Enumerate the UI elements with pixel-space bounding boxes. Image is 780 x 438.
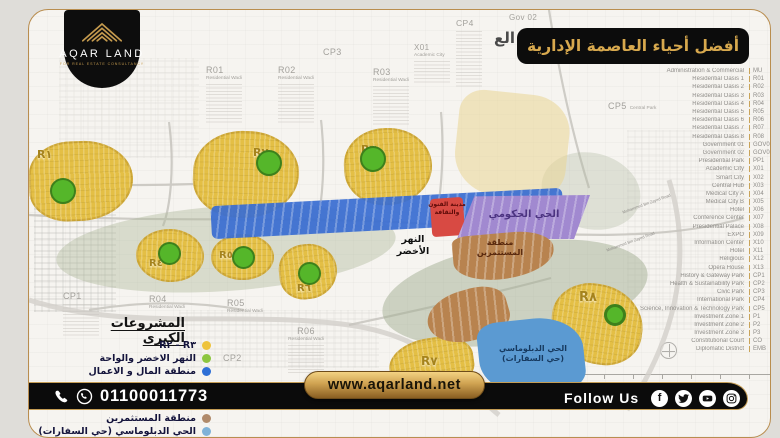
- legend-color-dot: [202, 341, 211, 350]
- map-label-code: R03: [373, 67, 409, 77]
- legend-row-code: X08: [749, 224, 771, 230]
- government-zone-label: الحي الحكومي: [484, 209, 564, 222]
- legend-row: Medical City B X05: [616, 198, 771, 206]
- map-label-code: CP2: [223, 353, 242, 363]
- legend-row: Residential Oasis 8 R08: [616, 133, 771, 141]
- legend-row-label: Residential Oasis 4: [616, 101, 749, 107]
- map-label-sub: Academic City: [414, 53, 450, 58]
- green-marker: [298, 262, 321, 285]
- projects-legend-bottom: منطقة المستثمرين الحي الدبلوماسي (حي الس…: [41, 412, 211, 438]
- legend-item: منطقة المال و الاعمال: [41, 365, 211, 378]
- diplomatic-zone-label-line1: الحي الدبلوماسي: [495, 344, 571, 354]
- legend-row: International Park CP4: [616, 296, 771, 304]
- legend-row: Residential Oasis 1 R01: [616, 75, 771, 83]
- legend-row-code: CP5: [749, 306, 771, 312]
- district-label: R٥: [219, 251, 233, 261]
- legend-row-code: R06: [749, 117, 771, 123]
- poster-page: { "colors": { "gold": "#c49a4e", "black"…: [0, 0, 780, 438]
- green-marker: [360, 146, 386, 172]
- district-legend: Administration & Commercial MU Residenti…: [616, 67, 771, 354]
- phone-icon: [54, 389, 69, 404]
- legend-row-label: Government 02: [616, 150, 749, 156]
- legend-row: Religious X12: [616, 255, 771, 263]
- legend-row-code: CP2: [749, 281, 771, 287]
- legend-row-label: Presidential Palace: [616, 224, 749, 230]
- map-label-x01: X01 Academic City: [414, 43, 450, 83]
- legend-row: Government 02 GOV02: [616, 149, 771, 157]
- legend-row-code: EMB: [749, 346, 771, 352]
- map-label-cp2: CP2: [223, 353, 242, 363]
- map-label-code: CP3: [323, 47, 342, 57]
- green-marker: [232, 246, 255, 269]
- legend-row-code: R08: [749, 134, 771, 140]
- map-label-cp4: CP4: [456, 18, 482, 89]
- map-label-code: X01: [414, 43, 450, 52]
- legend-row: Diplomatic District EMB: [616, 345, 771, 353]
- legend-row: Medical City A X04: [616, 190, 771, 198]
- legend-row-label: Presidential Park: [616, 158, 749, 164]
- legend-row-code: X06: [749, 207, 771, 213]
- legend-item-label: الحي الدبلوماسي (حي السفارات): [38, 426, 196, 437]
- legend-row-label: Constitutional Court: [616, 338, 749, 344]
- brand-name: AQAR LAND: [59, 48, 144, 60]
- legend-row-label: Medical City A: [616, 191, 749, 197]
- legend-row-label: Civic Park: [616, 289, 749, 295]
- district-label: R٧: [421, 355, 438, 367]
- district-label: R١: [37, 149, 52, 160]
- legend-row-label: Investment Zone 3: [616, 330, 749, 336]
- legend-row-code: GOV02: [749, 150, 771, 156]
- legend-row-label: Administration & Commercial: [616, 68, 749, 74]
- instagram-camera: [726, 393, 737, 404]
- legend-row-code: CP4: [749, 297, 771, 303]
- legend-row-code: PP1: [749, 158, 771, 164]
- headline-banner: أفضل أحياء العاصمة الإدارية: [517, 28, 749, 64]
- facebook-icon[interactable]: f: [651, 390, 668, 407]
- legend-row-code: X01: [749, 166, 771, 172]
- legend-row: Residential Oasis 5 R05: [616, 108, 771, 116]
- diplomatic-zone-label-line2: (حي السفارات): [495, 354, 571, 364]
- legend-row-code: CP1: [749, 273, 771, 279]
- legend-row: Residential Oasis 2 R02: [616, 83, 771, 91]
- brand-logo: AQAR LAND FOR REAL ESTATE CONSULTANCY: [64, 10, 140, 88]
- legend-row: Investment Zone 2 P2: [616, 321, 771, 329]
- label-details-lines: [206, 84, 242, 124]
- legend-row-label: History & Gateway Park: [616, 273, 749, 279]
- website-url[interactable]: www.aqarland.net: [328, 377, 461, 393]
- legend-row-label: Diplomatic District: [616, 346, 749, 352]
- whatsapp-icon: [76, 388, 93, 405]
- legend-row-code: R03: [749, 93, 771, 99]
- green-marker: [256, 150, 282, 176]
- twitter-icon[interactable]: [675, 390, 692, 407]
- legend-row: Government 01 GOV01: [616, 141, 771, 149]
- legend-row-label: Health & Sustainability Park: [616, 281, 749, 287]
- map-label-r02: R02 Residential Wadi: [278, 65, 314, 124]
- map-label-cp3: CP3: [323, 47, 342, 57]
- legend-row-code: P2: [749, 322, 771, 328]
- facebook-glyph: f: [658, 393, 662, 404]
- legend-row-code: MU: [749, 68, 771, 74]
- legend-row-label: Investment Zone 1: [616, 314, 749, 320]
- legend-row-code: P1: [749, 314, 771, 320]
- legend-row-label: Medical City B: [616, 199, 749, 205]
- label-details-lines: [373, 86, 409, 126]
- legend-row: Health & Sustainability Park CP2: [616, 280, 771, 288]
- legend-row: History & Gateway Park CP1: [616, 272, 771, 280]
- legend-row-code: CP3: [749, 289, 771, 295]
- legend-row-code: X03: [749, 183, 771, 189]
- legend-item: النهر الاخضر والواحة: [41, 352, 211, 365]
- map-title-fragment: الع: [494, 29, 515, 47]
- investors-zone-label: منطقة المستثمرين: [474, 238, 526, 258]
- legend-row-code: GOV01: [749, 142, 771, 148]
- map-label-sub: Residential Wadi: [149, 305, 185, 310]
- legend-row-label: Central Hub: [616, 183, 749, 189]
- website-link[interactable]: www.aqarland.net: [304, 371, 485, 399]
- map-label-gov02: Gov 02: [509, 13, 537, 22]
- legend-row-code: R01: [749, 76, 771, 82]
- legend-row: Science, Innovation & Technology Park CP…: [616, 304, 771, 312]
- legend-row: Hotel X11: [616, 247, 771, 255]
- legend-row: Residential Oasis 4 R04: [616, 100, 771, 108]
- legend-row-label: Academic City: [616, 166, 749, 172]
- legend-row: Residential Oasis 3 R03: [616, 92, 771, 100]
- legend-row-code: X13: [749, 265, 771, 271]
- legend-row-label: Investment Zone 2: [616, 322, 749, 328]
- legend-row-code: R05: [749, 109, 771, 115]
- legend-row: Hotel X06: [616, 206, 771, 214]
- legend-row-label: Residential Oasis 7: [616, 125, 749, 131]
- map-label-r06: R06 Residential Wadi: [288, 326, 324, 375]
- legend-row-label: EXPO: [616, 232, 749, 238]
- diplomatic-zone-label: الحي الدبلوماسي (حي السفارات): [495, 344, 571, 364]
- legend-item: الحي الدبلوماسي (حي السفارات): [41, 425, 211, 438]
- legend-row: Investment Zone 3 P3: [616, 329, 771, 337]
- legend-row-label: Residential Oasis 2: [616, 84, 749, 90]
- map-label-code: CP4: [456, 18, 482, 28]
- legend-row: EXPO X09: [616, 231, 771, 239]
- legend-color-dot: [202, 354, 211, 363]
- map-label-sub: Residential Wadi: [373, 78, 409, 83]
- legend-row-label: Residential Oasis 1: [616, 76, 749, 82]
- legend-row-label: Residential Oasis 5: [616, 109, 749, 115]
- map-label-code: R04: [149, 294, 185, 304]
- legend-color-dot: [202, 414, 211, 423]
- legend-row-code: X09: [749, 232, 771, 238]
- legend-row-label: Hotel: [616, 207, 749, 213]
- legend-row-code: X05: [749, 199, 771, 205]
- legend-row-label: Residential Oasis 8: [616, 134, 749, 140]
- map-label-sub: Residential Wadi: [288, 337, 324, 342]
- green-marker: [158, 242, 181, 265]
- legend-row-code: CO: [749, 338, 771, 344]
- arts-zone-label: مدينة الفنون والثقافة: [427, 201, 467, 216]
- legend-row-code: R07: [749, 125, 771, 131]
- legend-row-code: X10: [749, 240, 771, 246]
- legend-row: Information Center X10: [616, 239, 771, 247]
- legend-row: Residential Oasis 6 R06: [616, 116, 771, 124]
- instagram-icon[interactable]: [723, 390, 740, 407]
- map-label-code: R06: [297, 326, 315, 336]
- legend-color-dot: [202, 367, 211, 376]
- twitter-bird: [678, 393, 689, 404]
- map-label-code: R05: [227, 298, 263, 308]
- legend-row: Administration & Commercial MU: [616, 67, 771, 75]
- label-details-lines: [456, 31, 482, 89]
- legend-row-code: X02: [749, 175, 771, 181]
- legend-row-label: Information Center: [616, 240, 749, 246]
- green-marker: [50, 178, 76, 204]
- legend-row-code: X07: [749, 215, 771, 221]
- map-label-r01: R01 Residential Wadi: [206, 65, 242, 124]
- legend-row: Conference Center X07: [616, 214, 771, 222]
- legend-row: Constitutional Court CO: [616, 337, 771, 345]
- green-river-label: النهر الأخضر: [384, 234, 442, 258]
- legend-row-code: P3: [749, 330, 771, 336]
- legend-item-label: R٢ - R٣: [159, 340, 196, 351]
- youtube-play: [702, 393, 713, 404]
- legend-row-code: X12: [749, 256, 771, 262]
- legend-row-label: Hotel: [616, 248, 749, 254]
- label-details-lines: [414, 61, 450, 83]
- map-label-code: CP1: [63, 291, 99, 301]
- legend-row-label: International Park: [616, 297, 749, 303]
- legend-item-label: منطقة المال و الاعمال: [89, 366, 196, 377]
- legend-row: Central Hub X03: [616, 182, 771, 190]
- map-label-sub: Residential Wadi: [206, 76, 242, 81]
- poster-card: R١ R٢ R٣ R٤ R٥ R٦ R٧ R٨ مدينة الفنون وال…: [28, 9, 771, 438]
- legend-row: Presidential Park PP1: [616, 157, 771, 165]
- map-label-code: R02: [278, 65, 314, 75]
- label-details-lines: [278, 84, 314, 124]
- legend-row-label: Religious: [616, 256, 749, 262]
- legend-row: Academic City X01: [616, 165, 771, 173]
- phone-contact[interactable]: 01100011773: [54, 384, 208, 408]
- map-label-code: R01: [206, 65, 242, 75]
- legend-row: Investment Zone 1 P1: [616, 313, 771, 321]
- wings-crest-icon: [78, 19, 126, 45]
- legend-item: منطقة المستثمرين: [41, 412, 211, 425]
- map-label-r05: R05 Residential Wadi: [227, 298, 263, 314]
- legend-row: Opera House X13: [616, 264, 771, 272]
- map-label-code: Gov 02: [509, 13, 537, 22]
- legend-row-label: Residential Oasis 3: [616, 93, 749, 99]
- projects-legend-top: R٢ - R٣ النهر الاخضر والواحة منطقة المال…: [41, 339, 211, 379]
- legend-row-label: Government 01: [616, 142, 749, 148]
- legend-row: Smart City X02: [616, 173, 771, 181]
- legend-row: Civic Park CP3: [616, 288, 771, 296]
- legend-row: Residential Oasis 7 R07: [616, 124, 771, 132]
- legend-row-code: R02: [749, 84, 771, 90]
- phone-number[interactable]: 01100011773: [100, 387, 208, 406]
- headline-text: أفضل أحياء العاصمة الإدارية: [527, 37, 739, 55]
- district-label: R٦: [297, 284, 311, 294]
- follow-us-label: Follow Us: [564, 390, 639, 406]
- legend-item-label: النهر الاخضر والواحة: [100, 353, 197, 364]
- legend-row-code: X04: [749, 191, 771, 197]
- map-label-r03: R03 Residential Wadi: [373, 67, 409, 126]
- map-label-sub: Residential Wadi: [278, 76, 314, 81]
- legend-row-label: Smart City: [616, 175, 749, 181]
- youtube-icon[interactable]: [699, 390, 716, 407]
- legend-row-code: R04: [749, 101, 771, 107]
- district-label: R٨: [579, 291, 597, 304]
- legend-item: R٢ - R٣: [41, 339, 211, 352]
- legend-row-label: Science, Innovation & Technology Park: [616, 306, 749, 312]
- map-label-r04: R04 Residential Wadi: [149, 294, 185, 310]
- legend-row-label: Conference Center: [616, 215, 749, 221]
- map-label-sub: Residential Wadi: [227, 309, 263, 314]
- legend-row-label: Residential Oasis 6: [616, 117, 749, 123]
- legend-row-code: X11: [749, 248, 771, 254]
- legend-item-label: منطقة المستثمرين: [106, 413, 196, 424]
- legend-color-dot: [202, 427, 211, 436]
- brand-tagline: FOR REAL ESTATE CONSULTANCY: [60, 62, 144, 66]
- legend-row-label: Opera House: [616, 265, 749, 271]
- social-links: Follow Us f: [564, 387, 740, 409]
- legend-row: Presidential Palace X08: [616, 223, 771, 231]
